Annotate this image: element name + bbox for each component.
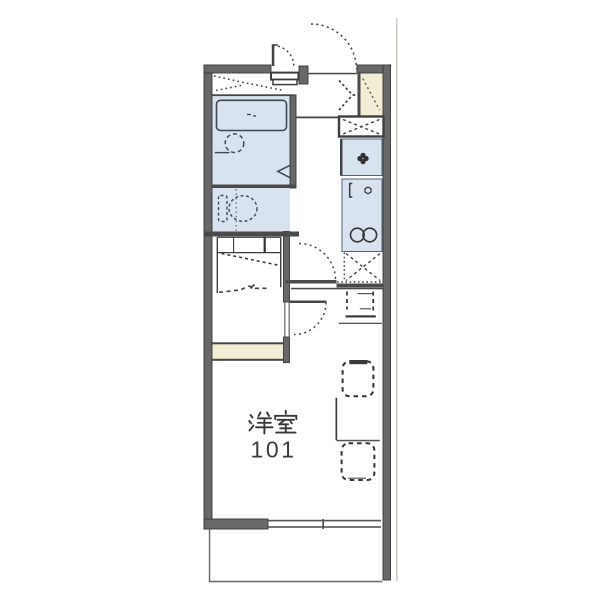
svg-text:101: 101 bbox=[251, 437, 297, 463]
